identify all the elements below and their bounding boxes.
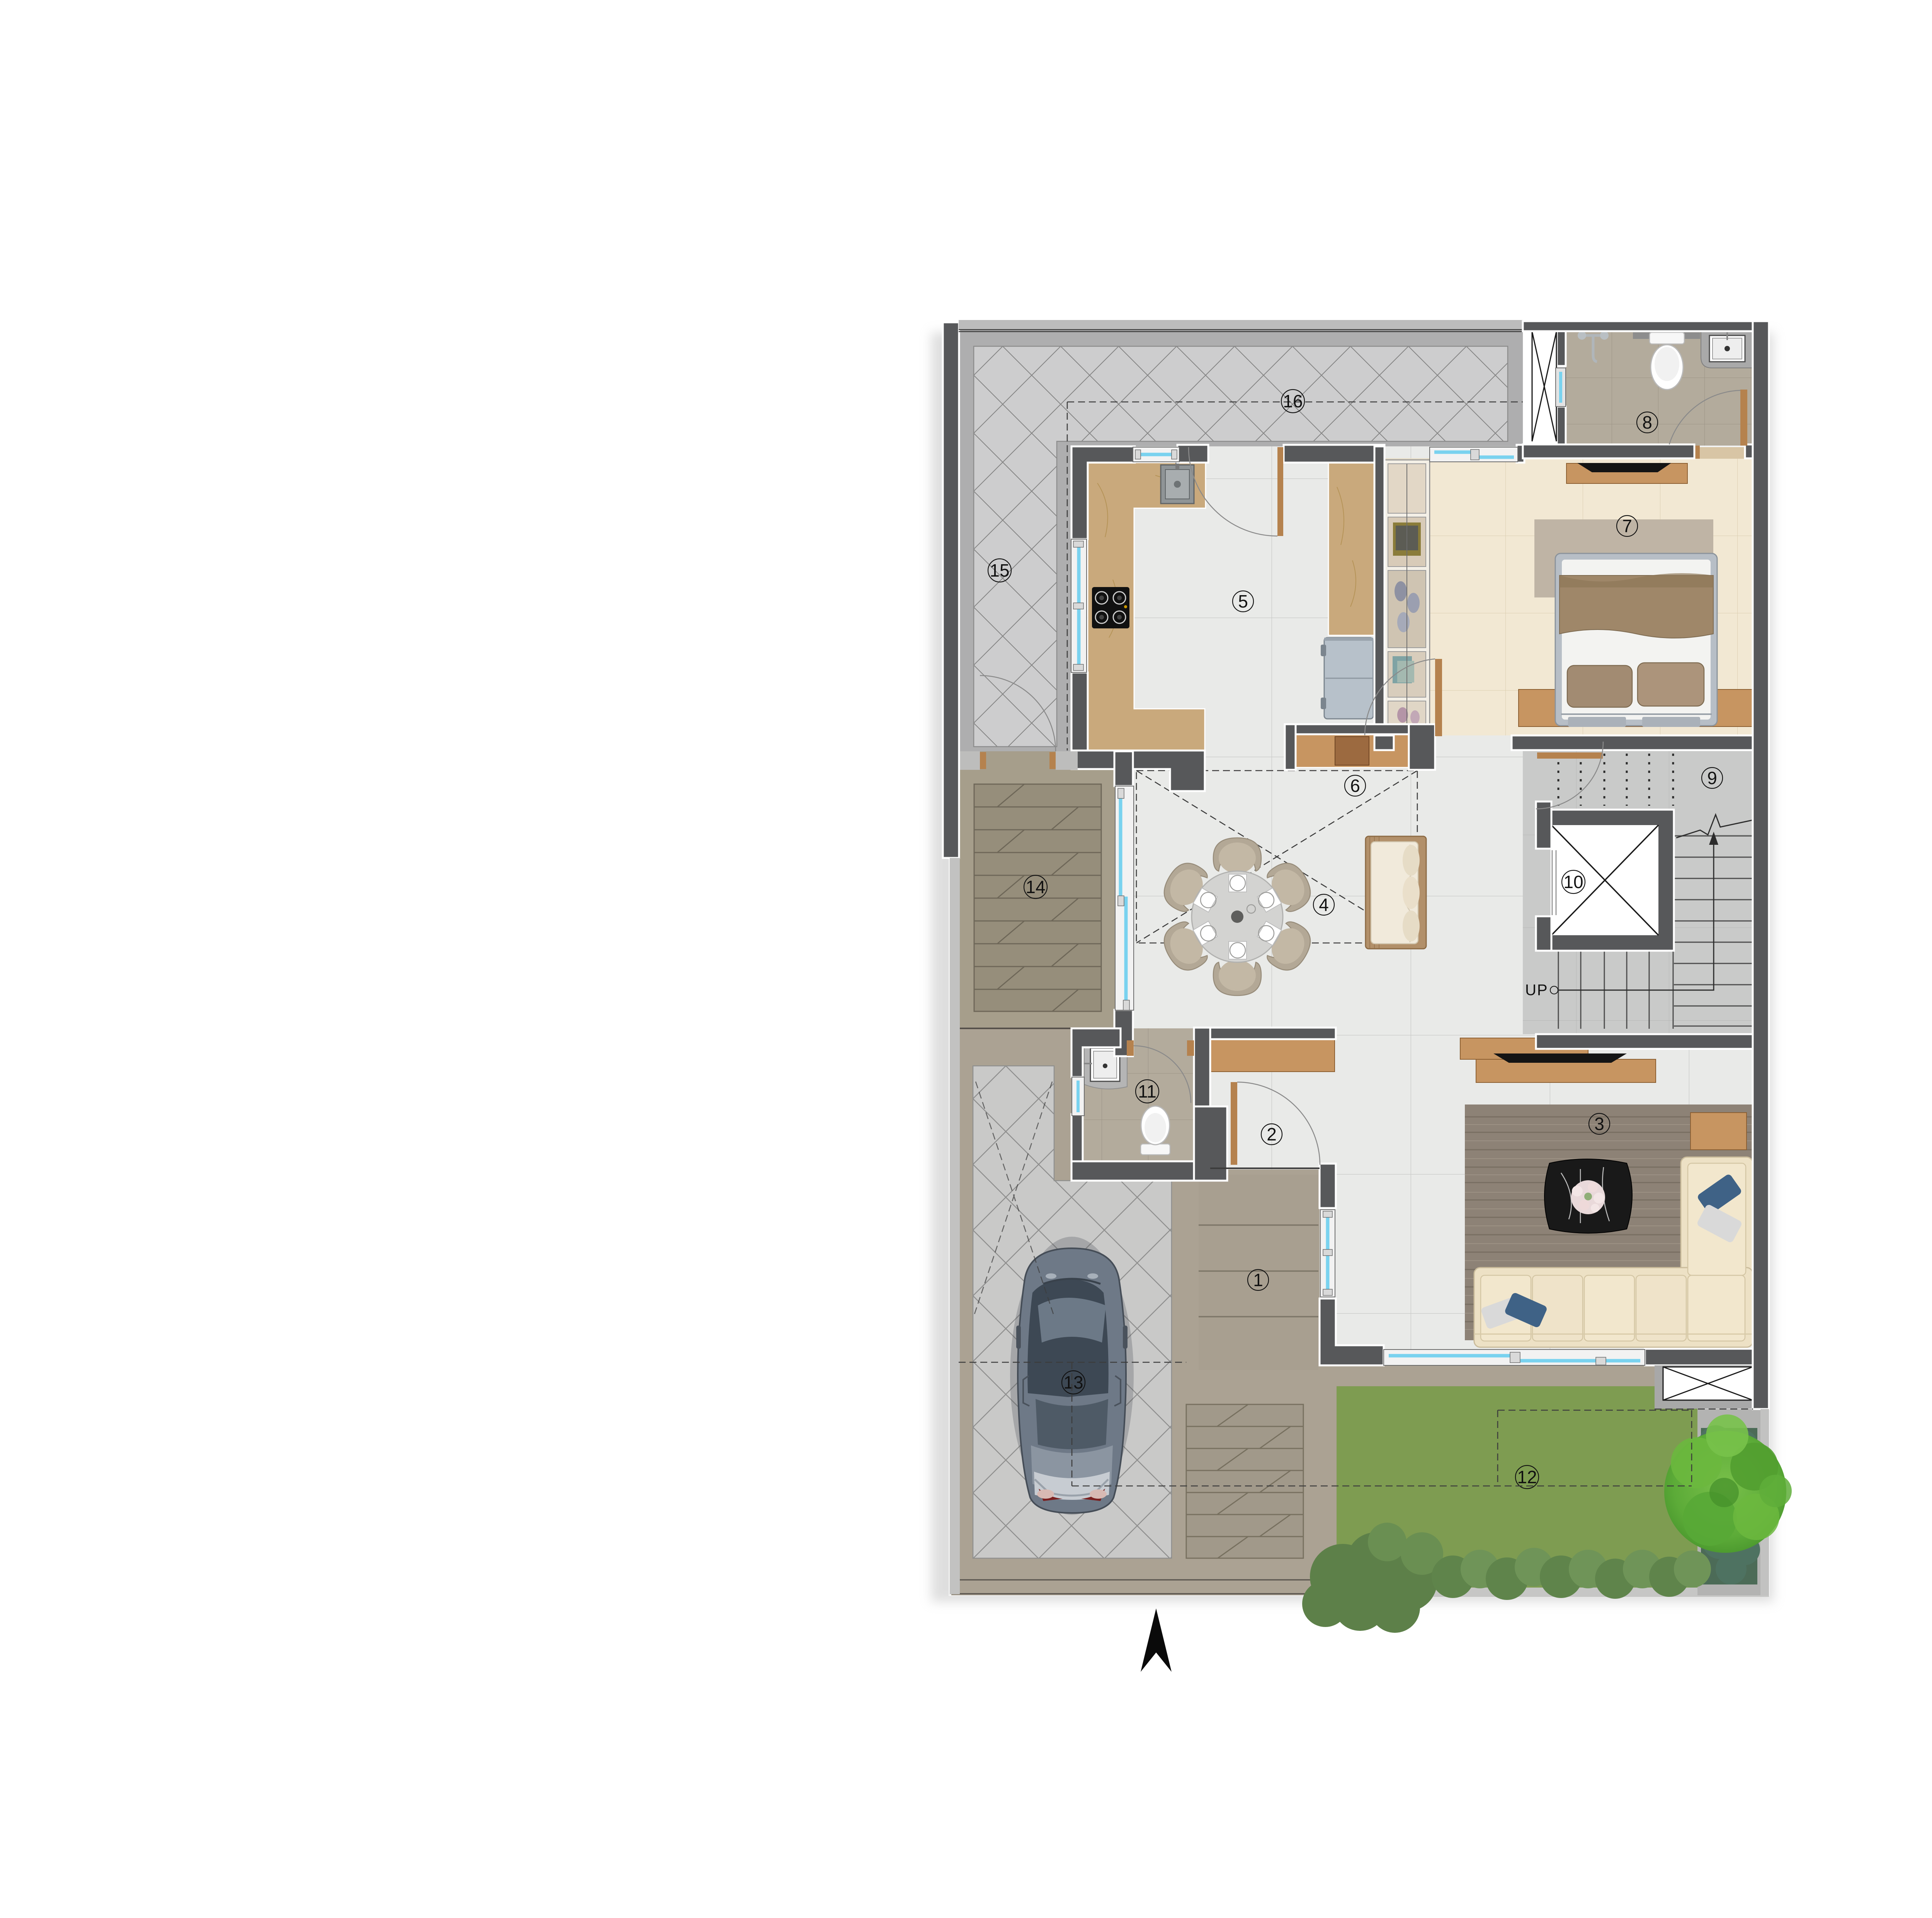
svg-text:16: 16	[1283, 391, 1303, 411]
svg-text:9: 9	[1707, 768, 1717, 788]
svg-text:3: 3	[1594, 1114, 1604, 1134]
svg-text:8: 8	[1642, 412, 1652, 432]
svg-text:14: 14	[1026, 877, 1045, 897]
svg-text:15: 15	[990, 560, 1009, 580]
svg-text:11: 11	[1138, 1081, 1156, 1101]
svg-text:10: 10	[1563, 872, 1583, 892]
svg-text:13: 13	[1063, 1372, 1083, 1392]
svg-text:7: 7	[1622, 516, 1632, 536]
svg-text:4: 4	[1319, 895, 1329, 915]
svg-text:UP: UP	[1525, 982, 1548, 999]
svg-text:2: 2	[1267, 1124, 1277, 1144]
svg-text:5: 5	[1238, 591, 1248, 611]
svg-text:1: 1	[1253, 1270, 1263, 1290]
svg-text:6: 6	[1350, 776, 1360, 796]
svg-text:12: 12	[1517, 1467, 1537, 1487]
